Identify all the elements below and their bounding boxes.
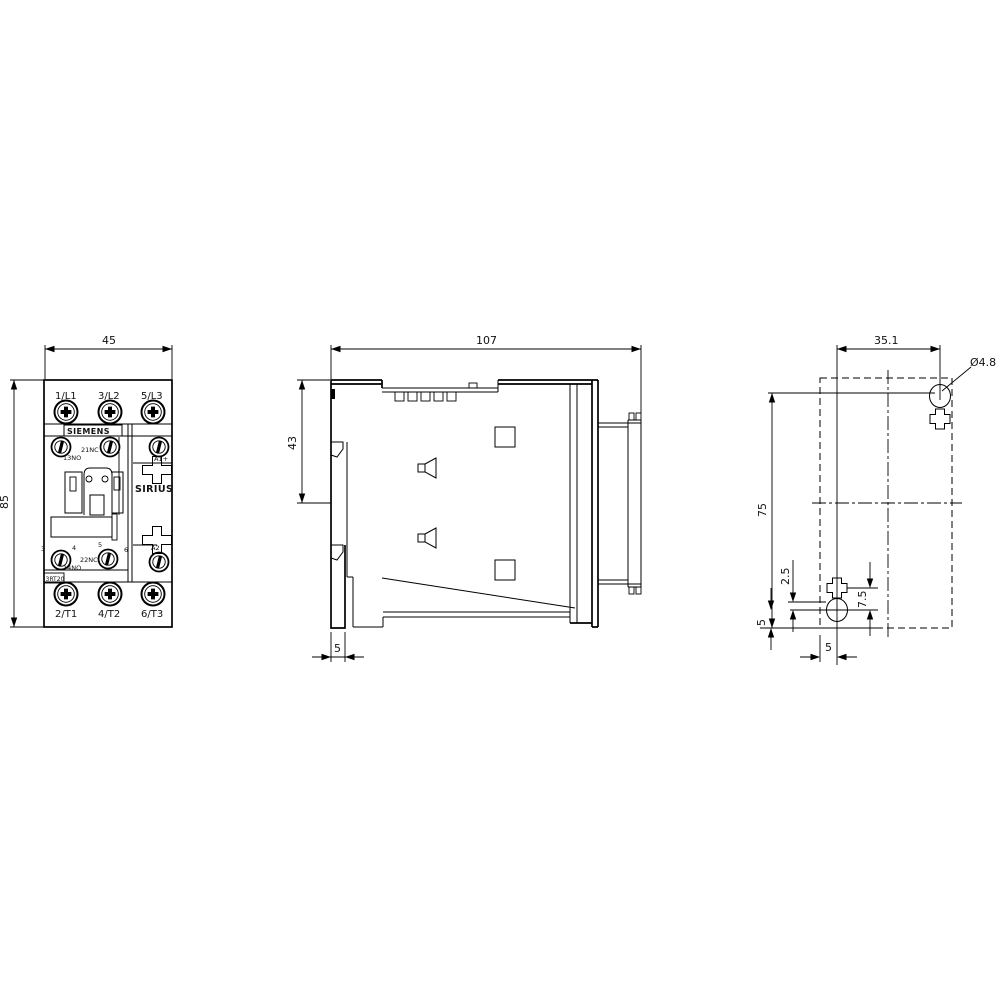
front-width-value: 45 [102, 334, 116, 347]
arrow-icon [322, 654, 332, 660]
arrow-icon [769, 619, 775, 629]
offset-small-value: 2.5 [779, 568, 792, 586]
arrow-icon [867, 610, 873, 620]
drill-spacing-y-value: 75 [756, 503, 769, 517]
dimension-drawing-page: 45 85 SIEMENS 1/L1 3/L2 5/L3 13NO 21NC A [0, 0, 1000, 1000]
release-lever-icon [418, 458, 436, 478]
offset-slot-value: 7.5 [856, 591, 869, 609]
aux-number-5: 5 [98, 541, 102, 549]
offset-side-dimension: 5 [800, 641, 857, 660]
aux-label-21NC: 21NC [81, 446, 99, 454]
screw-terminal-6T3 [142, 583, 165, 606]
terminal-label-6T3: 6/T3 [141, 609, 163, 620]
front-height-value: 85 [0, 495, 11, 509]
arrow-icon [790, 593, 796, 603]
side-view: 107 43 5 [286, 334, 641, 662]
arrow-icon [867, 579, 873, 589]
arrow-icon [299, 494, 305, 504]
terminal-label-2T1: 2/T1 [55, 609, 77, 620]
front-height-dimension: 85 [0, 380, 44, 627]
arrow-icon [768, 628, 774, 638]
series-label: SIRIUS [135, 484, 173, 495]
arrow-icon [931, 346, 941, 352]
type-label: 3RT20 [46, 576, 65, 583]
rear-plate [628, 420, 641, 587]
front-width-dimension: 45 [45, 334, 172, 379]
side-rail-depth-value: 5 [334, 642, 341, 655]
side-rail-height-dimension: 43 [286, 380, 331, 503]
arrow-icon [11, 380, 17, 390]
terminal-label-4T2: 4/T2 [98, 609, 120, 620]
aux-number-3: 3 [41, 545, 45, 553]
rear-flange-lines [598, 423, 641, 584]
arrow-icon [811, 654, 821, 660]
screw-coil-A1 [150, 438, 169, 457]
aux-label-22NC: 22NC [80, 556, 98, 564]
contactor-dimension-drawing: 45 85 SIEMENS 1/L1 3/L2 5/L3 13NO 21NC A [0, 0, 1000, 1000]
drilling-pattern-view: 35.1 Ø4.8 75 2.5 5 [755, 334, 996, 665]
screw-aux-21NC [101, 438, 120, 457]
extension-lines [760, 345, 940, 665]
screw-coil-A2 [150, 553, 169, 572]
side-rail-depth-dimension: 5 [312, 632, 364, 662]
arrow-icon [11, 618, 17, 628]
front-divider-lines [128, 424, 132, 582]
drill-spacing-y-dimension: 75 [756, 393, 775, 628]
screw-terminal-2T1 [55, 583, 78, 606]
arrow-icon [837, 654, 847, 660]
release-lever-icon [418, 528, 436, 548]
offset-small-dimension: 2.5 [779, 560, 796, 632]
drill-spacing-x-value: 35.1 [874, 334, 899, 347]
coil-label-A2: A2 [151, 544, 160, 552]
side-depth-dimension: 107 [331, 334, 641, 413]
offset-slot-dimension: 7.5 [856, 562, 873, 636]
screw-terminal-3L2 [99, 401, 122, 424]
screw-terminal-1L1 [55, 401, 78, 424]
front-view: 45 85 SIEMENS 1/L1 3/L2 5/L3 13NO 21NC A [0, 334, 173, 627]
arrow-icon [299, 380, 305, 390]
offset-bottom-value: 5 [755, 619, 768, 626]
arrow-icon [45, 346, 55, 352]
aux-number-4: 4 [72, 544, 76, 552]
screw-terminal-5L3 [142, 401, 165, 424]
aux-label-13NO: 13NO [63, 454, 81, 462]
side-rail-height-value: 43 [286, 436, 299, 450]
arrow-icon [790, 610, 796, 620]
hole-diameter-value: Ø4.8 [970, 356, 996, 369]
drill-spacing-x-dimension: 35.1 [837, 334, 940, 352]
arrow-icon [768, 601, 774, 611]
screw-aux-22NC [99, 550, 118, 569]
side-depth-value: 107 [476, 334, 497, 347]
hole-diameter-callout: Ø4.8 [942, 356, 996, 391]
arrow-icon [632, 346, 642, 352]
offset-side-value: 5 [825, 641, 832, 654]
aux-label-14NO: 14NO [63, 564, 81, 572]
aux-number-6: 6 [124, 546, 128, 554]
screw-terminal-4T2 [99, 583, 122, 606]
arrow-icon [163, 346, 173, 352]
arrow-icon [769, 393, 775, 403]
brand-label: SIEMENS [67, 427, 110, 436]
contactor-side-body [331, 380, 641, 628]
arrow-icon [331, 346, 341, 352]
arrow-icon [345, 654, 355, 660]
arrow-icon [837, 346, 847, 352]
